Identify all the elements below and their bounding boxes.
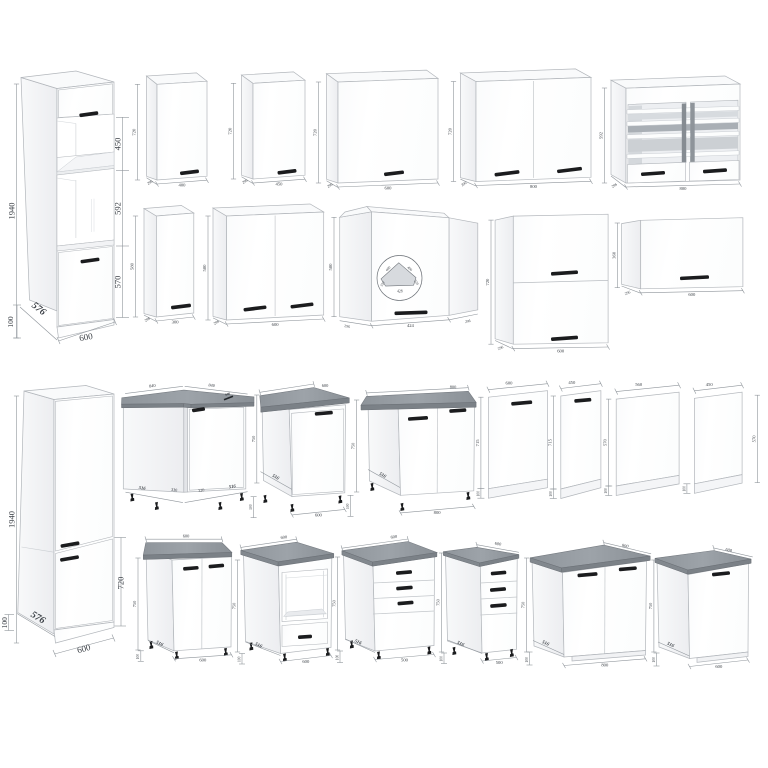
svg-text:800: 800 [450,384,457,389]
svg-text:600: 600 [272,322,280,327]
svg-text:750: 750 [251,435,256,442]
svg-text:750: 750 [332,599,337,606]
svg-text:600: 600 [315,513,323,518]
svg-text:600: 600 [715,664,723,669]
svg-text:1940: 1940 [7,511,17,528]
svg-text:100: 100 [476,491,480,497]
svg-text:750: 750 [436,598,441,605]
svg-text:592: 592 [599,131,604,139]
svg-text:100: 100 [346,503,350,509]
svg-text:750: 750 [521,601,526,608]
svg-text:500: 500 [496,660,504,665]
svg-text:600: 600 [183,533,190,538]
svg-text:570: 570 [603,438,608,446]
svg-text:600: 600 [506,380,514,385]
svg-text:720: 720 [313,128,318,136]
svg-text:715: 715 [475,439,480,447]
svg-text:715: 715 [547,438,552,446]
svg-text:100: 100 [525,657,529,663]
svg-text:720: 720 [448,127,453,135]
svg-text:720: 720 [228,127,233,135]
svg-text:800: 800 [601,663,609,668]
svg-text:100: 100 [682,486,686,492]
svg-text:100: 100 [0,617,9,629]
svg-text:570: 570 [113,276,123,289]
svg-text:720: 720 [132,128,137,136]
svg-text:750: 750 [351,442,356,449]
svg-text:428: 428 [397,290,403,294]
svg-text:600: 600 [385,186,393,191]
svg-text:600: 600 [199,657,207,662]
svg-text:450: 450 [568,380,576,385]
svg-text:330: 330 [171,487,178,493]
svg-text:100: 100 [237,656,241,662]
svg-text:800: 800 [680,186,688,191]
svg-text:320: 320 [198,487,205,493]
svg-text:592: 592 [113,202,123,215]
svg-text:300: 300 [172,320,180,325]
svg-text:450: 450 [113,138,123,151]
svg-text:360: 360 [611,251,616,259]
svg-text:450: 450 [276,182,284,187]
svg-text:1940: 1940 [7,203,17,220]
svg-text:100: 100 [652,657,656,663]
svg-text:570: 570 [751,435,756,443]
svg-text:750: 750 [132,600,137,607]
svg-text:450: 450 [706,382,714,387]
svg-text:600: 600 [688,292,696,297]
svg-text:800: 800 [434,510,442,515]
svg-text:100: 100 [604,488,608,494]
svg-text:580: 580 [202,264,207,272]
svg-text:600: 600 [557,348,565,353]
svg-text:750: 750 [648,602,653,609]
svg-text:100: 100 [335,655,339,661]
svg-text:100: 100 [549,491,553,497]
svg-text:600: 600 [302,659,310,664]
svg-text:500: 500 [401,658,409,663]
svg-text:720: 720 [116,577,126,590]
svg-text:424: 424 [407,323,415,328]
svg-text:580: 580 [328,263,333,271]
svg-text:600: 600 [322,383,329,388]
svg-text:560: 560 [635,382,643,387]
svg-text:100: 100 [249,504,253,510]
svg-text:100: 100 [6,316,15,328]
svg-text:100: 100 [136,654,140,660]
svg-text:750: 750 [232,602,237,609]
svg-text:720: 720 [485,278,490,286]
svg-text:800: 800 [530,184,538,189]
svg-text:580: 580 [130,262,135,270]
svg-text:400: 400 [179,183,187,188]
svg-text:100: 100 [439,656,443,662]
